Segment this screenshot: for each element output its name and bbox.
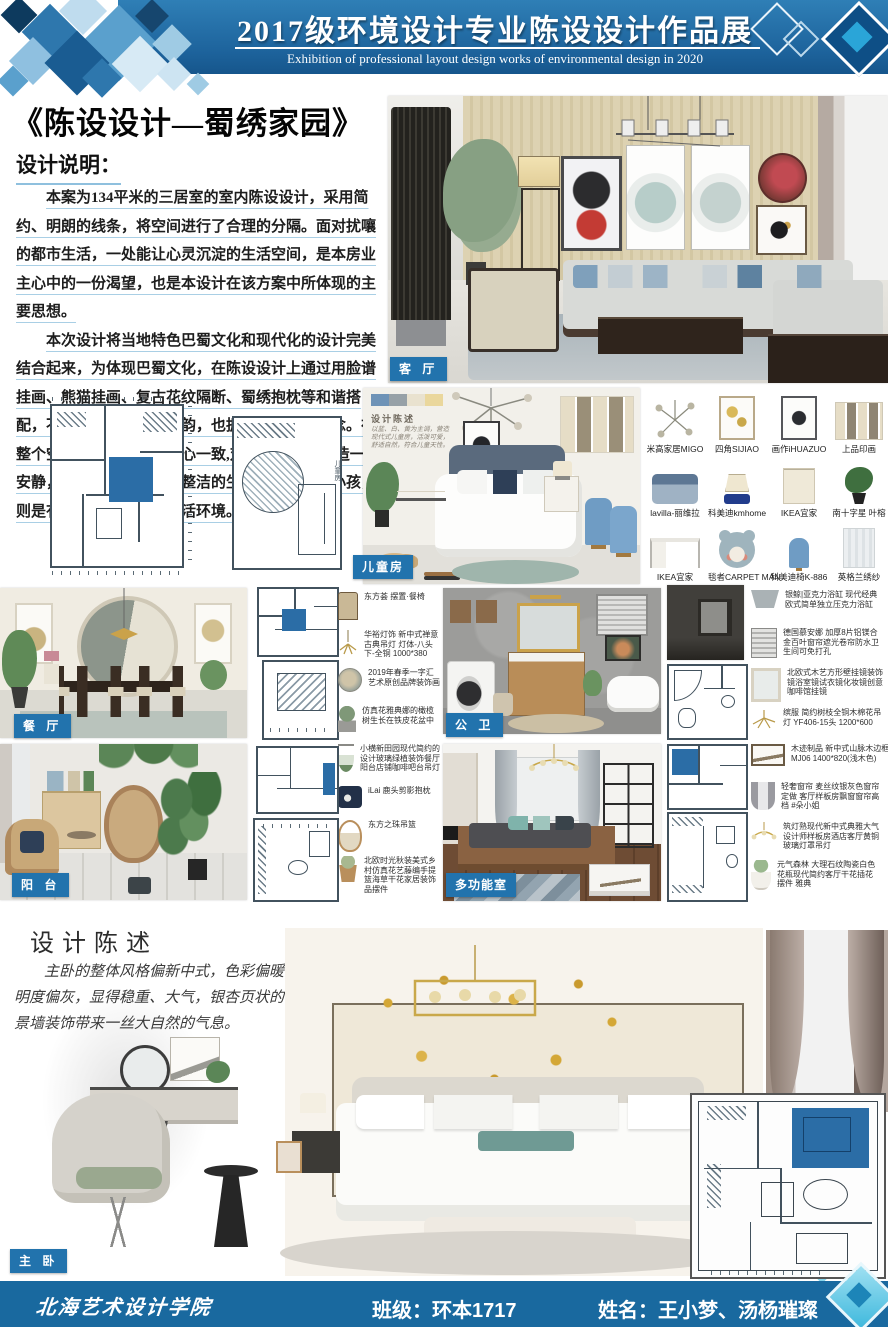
wall-cabinets	[450, 600, 498, 623]
photo-frame	[276, 1141, 302, 1173]
egg-chair	[104, 785, 163, 864]
potted-plant-icon	[845, 467, 873, 493]
bear-rug-icon	[719, 532, 755, 568]
bed-pillows	[356, 1095, 696, 1129]
wall-shelf	[396, 498, 446, 501]
bathroom-floorplan	[667, 664, 748, 740]
header-divider	[235, 47, 760, 49]
armchair	[468, 268, 559, 351]
gold-chandelier-icon	[526, 744, 582, 784]
multi-floorplan-detail	[667, 812, 748, 902]
product-label: 毯者CARPET MAN	[708, 571, 766, 583]
gold-lamp-left	[300, 1093, 326, 1113]
dining-item-list: 东方荟 摆置·餐椅 华裕灯饰 新中式禅意古典吊灯 灯体-八头下-全铜 1000*…	[338, 592, 440, 898]
bath-item-list: 银鲸|亚克力浴缸 现代经典欧式简单独立压克力浴缸 德国慕安娜 加厚8片铝镁合金百…	[751, 590, 886, 898]
rug	[452, 560, 579, 584]
laser-cut-screen	[391, 107, 451, 319]
product-label: lavilla-丽维拉	[646, 507, 704, 519]
plan-desk	[716, 826, 735, 843]
bedroom-rug	[280, 1231, 740, 1275]
mountain-art-icon	[751, 744, 785, 766]
pendant-lamp-icon	[655, 400, 695, 440]
glass-planter-lamp-icon	[338, 744, 354, 772]
plant-pot	[375, 510, 389, 528]
flower-basket-icon	[338, 856, 358, 882]
plan-table	[96, 508, 121, 539]
linear-chandelier-icon	[608, 96, 738, 166]
blue-chair-icon	[789, 538, 809, 568]
item-text: 筑灯熟现代新中式典雅大气设计师样板房酒店客厅黄铜玻璃灯罩吊灯	[783, 822, 883, 851]
item-text: 轻奢窗帘 麦丝纹银灰色窗帘定做 客厅样板房飘窗窗帘高档 #朵小姐	[781, 782, 881, 811]
kids-floorplan-detail: 儿童房	[232, 416, 342, 570]
floor-lamp-shade	[518, 156, 560, 187]
ginkgo-chandelier-icon	[390, 945, 560, 1025]
curtain-icon	[751, 782, 775, 810]
kids-bed-icon	[652, 474, 698, 504]
master-bedroom-badge: 主 卧	[10, 1249, 67, 1273]
teal-lumbar-pillow	[478, 1131, 574, 1151]
table-lamp	[553, 461, 572, 477]
item-text: 木迹制品 新中式山脉木边框 MJ06 1400*820(浅木色)	[791, 744, 888, 763]
item-text: iLai 鹿头剪影抱枕	[368, 786, 431, 796]
round-art-icon	[338, 668, 362, 692]
bathroom-badge: 公 卫	[446, 713, 503, 737]
washer-door	[456, 676, 482, 711]
item-text: 仿真花雅典娜的橄榄树生长在铁皮花盆中	[362, 706, 440, 725]
work-title: 《陈设设计—蜀绣家园》	[12, 98, 364, 143]
coffee-table	[598, 317, 743, 354]
product-label: 南十字星 叶榕	[830, 507, 888, 519]
dining-room-badge: 餐 厅	[14, 714, 71, 738]
dining-chandelier-icon	[104, 588, 144, 650]
school-name: 北海艺术设计学院	[34, 1291, 213, 1320]
mountain-print	[600, 873, 641, 887]
panda-art-icon	[781, 396, 817, 440]
vase-blossom	[44, 651, 59, 684]
screen-base	[396, 320, 446, 346]
koi-painting	[756, 205, 808, 255]
kid-chair-2	[610, 506, 638, 553]
truck-lamp-base-icon	[724, 494, 750, 504]
item-text: 德国慕安娜 加厚8片铝镁合金百叶窗帘遮光卷帘防水卫生间可免打孔	[783, 628, 883, 657]
product-label: IKEA宜家	[770, 507, 828, 519]
plan-bed	[298, 484, 336, 555]
right-painting	[194, 603, 233, 664]
brass-chandelier-icon	[751, 822, 777, 846]
bathtub	[607, 676, 659, 713]
shadow	[667, 638, 744, 661]
chair-cushions	[59, 687, 187, 696]
monstera-pot	[188, 859, 208, 879]
kids-room-badge: 儿童房	[353, 555, 413, 579]
branch-chandelier-icon	[751, 708, 777, 730]
multifunction-badge: 多功能室	[446, 873, 516, 897]
small-art	[605, 635, 642, 661]
plan-table	[761, 1182, 794, 1217]
navy-pillow	[20, 831, 45, 853]
color-swatches	[371, 394, 443, 406]
faux-olive-icon	[338, 706, 356, 732]
vase-flowers-icon	[751, 860, 771, 890]
design-description-heading: 设计说明：	[16, 149, 121, 185]
window	[698, 599, 732, 637]
product-label: 英格兰绣纱	[830, 571, 888, 583]
plant	[366, 462, 399, 513]
multi-floorplan-key	[667, 744, 748, 810]
white-nightstand	[544, 476, 579, 511]
plan-shower	[674, 670, 702, 701]
plant-pot-icon	[852, 493, 866, 504]
dining-chair-icon	[338, 592, 358, 620]
kids-floorplan-overall	[50, 404, 184, 568]
balcony-floorplan-key	[256, 746, 339, 814]
kids-handwritten-note: 设计陈述 以蓝、白、黄为主调，营造现代式儿童房，活泼可爱，舒适自然，符合儿童天性…	[371, 412, 455, 449]
sofa-pillows	[573, 265, 843, 288]
kids-note-title: 设计陈述	[371, 412, 455, 425]
monstera	[156, 772, 225, 862]
class-label: 班级：环本1717	[372, 1294, 517, 1323]
gallery-frames	[560, 396, 634, 453]
item-text: 小横新田园现代简约的设计玻璃绿植装饰餐厅阳台店铺咖啡吧台吊灯	[360, 744, 440, 773]
product-label: 画作iHUAZUO	[770, 443, 828, 455]
opera-mask-painting	[561, 156, 622, 251]
master-floorplan	[690, 1093, 886, 1279]
balcony-floorplan-detail	[253, 818, 339, 902]
dining-floorplan-detail	[262, 660, 339, 740]
deer-pillow-icon	[338, 786, 362, 808]
sideboard-decor	[47, 771, 94, 791]
item-text: 银鲸|亚克力浴缸 现代经典欧式简单独立压克力浴缸	[785, 590, 885, 609]
bed-pillows	[457, 470, 557, 494]
nightstand-icon	[783, 468, 815, 504]
chair-legs	[58, 1197, 178, 1247]
product-label: 四角SIJIAO	[708, 443, 766, 455]
teal-pillows	[508, 816, 573, 830]
plan-toilet	[678, 708, 695, 729]
balcony-badge: 阳 台	[12, 873, 69, 897]
watering-can	[128, 877, 150, 894]
desk-icon	[650, 538, 700, 568]
blinds-icon	[751, 628, 777, 658]
item-text: 北欧式木艺方形壁挂镜装饰镜浴室镜试衣镜化妆镜创意咖啡馆挂镜	[787, 668, 887, 697]
plan-room-label: 儿童房	[332, 460, 342, 481]
plan-round-rug	[803, 1179, 847, 1210]
kid-chair-1	[585, 498, 613, 545]
vanity-plant	[206, 1061, 230, 1083]
description-paragraph-1: 本案为134平米的三居室的室内陈设设计，采用简约、明朗的线条，将空间进行了合理的…	[16, 184, 384, 327]
exhibition-subtitle: Exhibition of professional layout design…	[215, 51, 775, 67]
item-text: 2019年春季一字汇艺术原创品牌装饰画	[368, 668, 440, 687]
names-label: 姓名：王小梦、汤杨璀璨	[598, 1294, 818, 1323]
pedestal-base	[214, 1175, 248, 1247]
round-opera-art	[758, 153, 807, 203]
bronze-pendant-icon	[338, 630, 358, 656]
sconce	[530, 595, 561, 599]
plan-sink	[721, 695, 735, 709]
item-text: 东方荟 摆置·餐椅	[364, 592, 425, 602]
item-text: 元气森林 大理石纹陶瓷白色花瓶现代简约客厅干花插花摆件 雅典	[777, 860, 877, 889]
exhibition-title: 2017级环境设计专业陈设设计作品展	[215, 6, 775, 50]
poster-board: 2017级环境设计专业陈设设计作品展 Exhibition of profess…	[0, 0, 888, 1327]
item-text: 缤服 简约树枝全铜木棉花吊灯 YF406-15头 1200*600	[783, 708, 883, 727]
chair-cushion	[76, 1167, 162, 1189]
item-text: 华裕灯饰 新中式禅意古典吊灯 灯体-八头下-全铜 1000*380	[364, 630, 440, 659]
product-label: 科美迪kmhome	[708, 507, 766, 519]
product-label: IKEA宜家	[646, 571, 704, 583]
gold-leaf-art-icon	[719, 396, 755, 440]
wall-mirror-icon	[751, 668, 781, 702]
sheer-curtain-icon	[843, 528, 875, 568]
plan-oval	[288, 860, 308, 875]
vanity	[508, 652, 584, 715]
product-label: 科美迪椅K-886	[770, 571, 828, 583]
plan-seat	[309, 831, 331, 857]
item-text: 北欧时光秋装美式乡村仿真花艺藤编手提篮海草干花家居装饰品摆件	[364, 856, 440, 894]
plan-table-hatch	[277, 673, 326, 711]
kids-note-body: 以蓝、白、黄为主调，营造现代式儿童房，活泼可爱，舒适自然，符合儿童天性。	[371, 425, 455, 449]
plan-round-rug	[242, 451, 303, 513]
living-room-photo	[388, 96, 888, 383]
plan-stool	[726, 854, 739, 868]
floor-lamp-shelf	[521, 188, 560, 281]
plan-master-bed	[803, 1117, 851, 1152]
item-text: 东方之珠吊篮	[368, 820, 416, 830]
dining-floorplan-key	[257, 587, 339, 657]
bathtub-icon	[751, 590, 779, 608]
plan-sofa	[796, 1233, 848, 1264]
living-room-badge: 客 厅	[390, 357, 447, 381]
plant	[583, 670, 603, 696]
gallery-wall-icon	[835, 402, 883, 440]
hanging-basket-icon	[338, 820, 362, 852]
product-label: 上品印画	[830, 443, 888, 455]
bathroom-before-photo	[667, 585, 744, 660]
mirror	[517, 603, 580, 653]
truck-lamp-icon	[725, 474, 749, 492]
jute-rug	[508, 714, 604, 733]
tv-cabinet	[768, 334, 888, 383]
blind	[596, 594, 648, 636]
product-label: 米高家居MIGO	[646, 443, 704, 455]
